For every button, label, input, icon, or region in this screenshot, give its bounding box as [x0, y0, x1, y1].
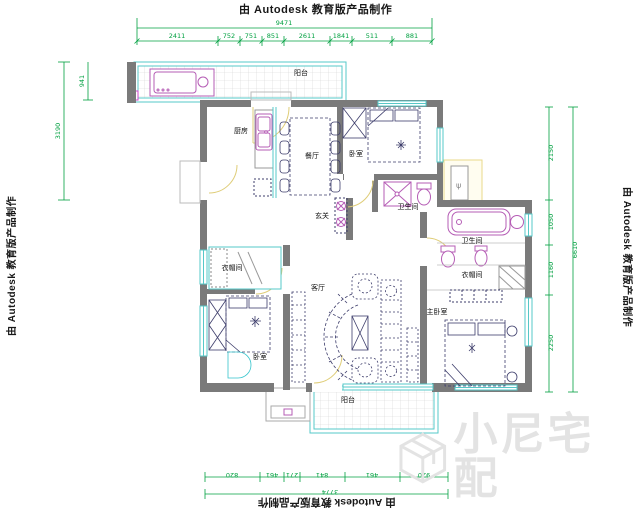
floorplan-canvas: ψ — [0, 0, 640, 512]
watermark-text: 小尼宅配 — [454, 413, 640, 501]
room-label-living: 客厅 — [311, 283, 325, 293]
room-label-balcony-top: 阳台 — [294, 68, 308, 78]
curved-sofa — [324, 294, 358, 380]
dim-value: 2411 — [169, 32, 186, 40]
dim-value: 271 — [286, 471, 298, 479]
desk — [228, 352, 251, 378]
wardrobe-hatch — [499, 266, 525, 289]
dim-value: 851 — [267, 32, 279, 40]
window-left-bedroom — [200, 306, 207, 356]
dim-value: 2250 — [547, 335, 555, 352]
window-left-cloakroom — [200, 250, 207, 284]
master-bath-fixtures — [427, 209, 525, 302]
plant-icon — [337, 202, 346, 227]
room-label-bedroom-top: 卧室 — [349, 149, 363, 159]
bed-throw — [396, 140, 406, 150]
nightstand — [507, 372, 517, 382]
cube-logo-icon — [396, 430, 450, 484]
dim-value: 1050 — [547, 214, 555, 231]
window-balcony-band — [343, 384, 433, 390]
room-label-bath-tub: 卫生间 — [462, 236, 483, 246]
balcony-top — [128, 62, 346, 102]
window-top-bedroom — [378, 101, 426, 106]
kitchen-cabinet — [254, 179, 271, 196]
watermark: 小尼宅配 — [396, 413, 640, 501]
washing-machine — [150, 69, 214, 96]
kitchen-fixtures — [254, 107, 276, 198]
autodesk-banner-top: 由 Autodesk 教育版产品制作 — [239, 1, 392, 17]
door-openings — [198, 99, 428, 392]
room-label-dining: 餐厅 — [305, 151, 319, 161]
dim-value: 820 — [226, 471, 238, 479]
dim-value: 941 — [78, 75, 86, 87]
dim-value: 1841 — [333, 32, 350, 40]
coffee-table — [352, 316, 368, 350]
nightstand — [507, 326, 517, 336]
dim-value: 1160 — [547, 262, 555, 279]
autodesk-banner-left: 由 Autodesk 教育版产品制作 — [3, 196, 18, 336]
dim-value: 751 — [245, 32, 257, 40]
cloakroom-left — [209, 247, 281, 289]
ac-unit-icon: ψ — [456, 181, 461, 190]
window-right-bath — [525, 214, 532, 236]
bed-throw — [469, 343, 475, 353]
bed — [368, 108, 420, 162]
window-right-bedroom — [437, 128, 443, 162]
shoe-cabinet — [335, 198, 347, 233]
dresser — [450, 290, 502, 302]
dim-value: 2611 — [299, 32, 316, 40]
toilet — [417, 183, 431, 205]
dim-value: 461 — [366, 471, 378, 479]
entry-porch — [180, 161, 200, 203]
dim-value: 881 — [406, 32, 418, 40]
room-label-balcony-bottom: 阳台 — [341, 395, 355, 405]
armchair — [352, 274, 378, 299]
window-right-master — [525, 298, 532, 346]
master-bed-group — [445, 320, 517, 386]
dim-value: 6610 — [571, 242, 579, 259]
dimension-left: 3190 941 — [54, 62, 93, 200]
dim-value: 2150 — [547, 145, 555, 162]
tv-cabinet — [292, 292, 305, 382]
armchair — [352, 358, 378, 383]
door-arcs — [180, 92, 453, 383]
basin — [511, 216, 524, 229]
bidet — [475, 246, 487, 266]
room-label-cloakroom: 衣帽间 — [222, 263, 243, 273]
ac-platform: ψ — [444, 160, 482, 206]
kitchen-door-arc — [209, 165, 237, 193]
room-label-closet: 衣帽间 — [462, 270, 483, 280]
room-label-bedroom-bottom: 卧室 — [253, 352, 267, 362]
dim-value: 9471 — [276, 19, 293, 27]
sideboard — [381, 280, 401, 382]
wall-shelf — [407, 328, 418, 382]
kitchen-sink — [256, 114, 272, 150]
dimension-right: 2150 1050 1160 2250 6610 — [545, 107, 579, 392]
autodesk-banner-bottom: 由 Autodesk 教育版产品制作 — [258, 495, 396, 510]
room-label-entry: 玄关 — [315, 211, 329, 221]
dim-value: 3190 — [54, 123, 62, 140]
dim-value: 841 — [316, 471, 328, 479]
bed-throw — [250, 316, 261, 327]
bay-window-left — [266, 388, 310, 421]
bed — [226, 296, 270, 352]
dim-value: 461 — [266, 471, 278, 479]
room-label-kitchen: 厨房 — [234, 126, 248, 136]
autodesk-banner-right: 由 Autodesk 教育版产品制作 — [621, 187, 636, 327]
bedroom-bottom-furniture — [209, 296, 270, 378]
dim-value: 752 — [223, 32, 235, 40]
room-label-bath-shower: 卫生间 — [398, 202, 419, 212]
dim-value: 511 — [366, 32, 378, 40]
wardrobe — [209, 300, 226, 350]
room-label-master: 主卧室 — [427, 307, 448, 317]
toilet-2 — [441, 246, 455, 267]
dimension-top: 9471 2411 752 751 851 2611 1841 511 881 — [135, 18, 435, 46]
balcony-door-arc — [314, 355, 342, 383]
